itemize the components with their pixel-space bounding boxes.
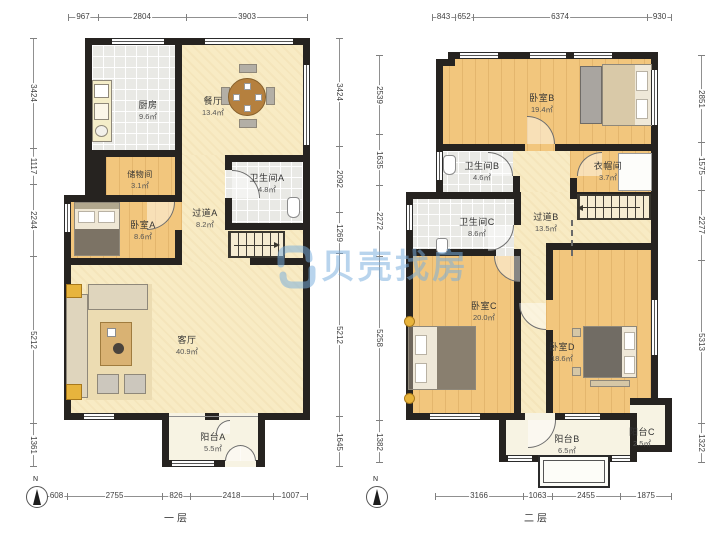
stairs-direction-arrow (234, 245, 274, 246)
bed-pillow (98, 211, 115, 223)
dimension-label: 2851 (697, 89, 705, 109)
wall-segment (665, 398, 672, 452)
sofa-icon (88, 284, 148, 310)
stove-icon (94, 103, 109, 120)
wall-segment (600, 413, 630, 420)
dimension-label: 3166 (469, 492, 489, 500)
floor2-ruler-right: 2851 1575 2277 5313 1322 (695, 55, 707, 463)
floor2-label: 二层 (524, 510, 550, 525)
dimension-label: 2418 (222, 492, 242, 500)
window (112, 38, 164, 45)
side-table-icon (66, 284, 82, 298)
compass-icon (26, 486, 48, 508)
room-label-dining: 餐厅13.4㎡ (202, 94, 224, 118)
window (436, 152, 443, 180)
room-label-hallway-b: 过道B13.5㎡ (533, 210, 559, 234)
dimension-label: 2539 (375, 85, 383, 105)
kettle-icon (95, 125, 108, 137)
toilet-icon (287, 197, 300, 218)
stool-icon (404, 316, 415, 327)
room-label-bedroom-c: 卧室C20.0㎡ (471, 299, 497, 323)
floor2-ruler-bottom: 3166 1063 2455 1875 (435, 490, 672, 502)
dimension-label: 5258 (375, 328, 383, 348)
bed-duvet (584, 327, 622, 377)
room-label-cloakroom: 衣帽间3.7㎡ (594, 159, 623, 183)
dimension-label: 3424 (335, 82, 343, 102)
room-label-bath-a: 卫生间A4.8㎡ (249, 171, 284, 195)
bed-duvet (75, 229, 119, 255)
floor1-ruler-top: 967 2804 3903 (68, 11, 308, 23)
dimension-label: 930 (652, 13, 667, 21)
window (172, 460, 214, 467)
wall-segment (64, 195, 182, 202)
dimension-label: 1382 (375, 432, 383, 452)
balcony-sill-line (169, 416, 258, 417)
room-label-kitchen: 厨房9.6㎡ (138, 98, 157, 122)
dimension-label: 1063 (528, 492, 548, 500)
plate-icon (255, 94, 262, 101)
window (84, 413, 114, 420)
door-opening (225, 460, 256, 467)
dimension-label: 843 (436, 13, 451, 21)
room-label-bedroom-a: 卧室A8.6㎡ (130, 218, 156, 242)
coffee-table-icon (100, 322, 132, 366)
wall-segment (514, 199, 521, 225)
dimension-label: 2092 (335, 169, 343, 189)
bed-icon (602, 64, 652, 126)
room-label-bath-c: 卫生间C8.6㎡ (459, 215, 495, 239)
dining-table-icon (228, 78, 266, 116)
bay-window-frame (543, 460, 605, 483)
dimension-label: 652 (456, 13, 471, 21)
plate-icon (244, 83, 251, 90)
wall-segment (555, 144, 658, 151)
window (651, 300, 658, 355)
dimension-label: 1361 (29, 435, 37, 455)
wall-segment (553, 243, 658, 250)
staircase (228, 231, 285, 258)
dimension-label: 1635 (375, 150, 383, 170)
bed-bench-icon (590, 380, 630, 387)
floor2-ruler-top: 843 652 6374 930 (432, 11, 672, 23)
room-label-bedroom-b: 卧室B19.4㎡ (529, 91, 555, 115)
bed-pillow (636, 99, 648, 119)
bed-headboard (409, 327, 413, 389)
floor1-label: 一层 (164, 510, 190, 525)
plate-icon (244, 105, 251, 112)
bed-pillow (636, 71, 648, 91)
armchair-icon (124, 374, 146, 394)
sink-icon (94, 84, 109, 98)
bed-icon (408, 326, 476, 390)
dimension-label: 1575 (697, 156, 705, 176)
bed-pillow (415, 363, 427, 383)
window (303, 65, 310, 145)
wall-segment (258, 413, 265, 467)
room-label-storage: 储物间3.1㎡ (127, 169, 153, 191)
bed-pillow (624, 356, 635, 374)
wall-segment (546, 243, 553, 300)
dimension-label: 6374 (550, 13, 570, 21)
dimension-label: 2277 (697, 215, 705, 235)
wall-segment (162, 413, 169, 467)
wall-segment (88, 150, 182, 157)
toilet-icon (436, 238, 448, 254)
side-table-icon (66, 384, 82, 400)
wall-segment (436, 144, 525, 151)
window (565, 413, 600, 420)
armchair-icon (97, 374, 119, 394)
bed-icon (583, 326, 637, 378)
room-label-balcony-b: 阳台B6.5㎡ (554, 432, 580, 456)
wall-segment (506, 413, 525, 420)
room-label-bath-b: 卫生间B4.6㎡ (464, 159, 499, 183)
wall-segment (265, 413, 310, 420)
room-label-living: 客厅40.9㎡ (176, 333, 198, 357)
north-label: N (33, 476, 38, 483)
toilet-icon (443, 155, 456, 175)
stairs-direction-arrow (583, 207, 640, 208)
plate-icon (233, 94, 240, 101)
dimension-label: 1007 (281, 492, 301, 500)
dining-chair-icon (239, 64, 257, 73)
window (460, 52, 498, 59)
wall-segment (64, 258, 182, 265)
floor1-ruler-right: 3424 2092 1269 5212 1645 (333, 38, 345, 467)
dimension-label: 2804 (132, 13, 152, 21)
dimension-label: 1117 (29, 157, 37, 176)
dimension-label: 967 (75, 13, 90, 21)
dimension-label: 1645 (335, 432, 343, 452)
nightstand-icon (572, 328, 581, 337)
dimension-label: 3424 (29, 83, 37, 103)
compass-icon (366, 486, 388, 508)
wall-segment (406, 192, 521, 199)
wall-segment (85, 38, 92, 202)
dimension-label: 3903 (237, 13, 257, 21)
window (612, 455, 630, 462)
wall-segment (555, 413, 565, 420)
cabinet-icon (618, 153, 652, 191)
dimension-label: 5212 (29, 330, 37, 350)
dimension-label: 608 (49, 492, 64, 500)
dimension-label: 826 (168, 492, 183, 500)
bed-duvet (437, 327, 475, 389)
window (406, 205, 413, 230)
bed-headboard (75, 203, 119, 209)
wall-segment (250, 258, 310, 265)
bed-duvet (603, 65, 635, 125)
wall-segment (225, 155, 232, 170)
nightstand-icon (572, 367, 581, 376)
room-label-bedroom-d: 卧室D18.6㎡ (549, 340, 575, 364)
dimension-label: 1322 (697, 433, 705, 453)
staircase (577, 194, 651, 220)
wall-segment (406, 249, 496, 256)
dimension-label: 5313 (697, 332, 705, 352)
window (64, 204, 71, 232)
wall-segment (225, 223, 310, 230)
window (205, 38, 293, 45)
bay-window (538, 455, 610, 488)
wardrobe-icon (580, 66, 602, 124)
decor-icon (107, 328, 116, 337)
decor-icon (113, 343, 124, 354)
wall-segment (175, 45, 182, 150)
window (651, 70, 658, 125)
room-label-balcony-c: 阳台C2.5㎡ (629, 425, 655, 449)
wall-segment (514, 249, 521, 256)
floor1-ruler-left: 3424 1117 2244 5212 1361 (27, 38, 39, 467)
dimension-label: 1269 (335, 223, 343, 243)
dimension-label: 2272 (375, 211, 383, 231)
north-label: N (373, 476, 378, 483)
bed-pillow (624, 332, 635, 350)
room-label-hallway-a: 过道A8.2㎡ (192, 206, 218, 230)
dimension-label: 1875 (636, 492, 656, 500)
bed-icon (74, 202, 120, 256)
window (530, 52, 566, 59)
wall-segment (225, 155, 310, 162)
dining-chair-icon (239, 119, 257, 128)
stool-icon (404, 393, 415, 404)
sofa-icon (66, 294, 88, 398)
dimension-label: 5212 (335, 325, 343, 345)
stairs-headroom-dashed-line (571, 220, 573, 256)
window (430, 413, 480, 420)
window (574, 52, 612, 59)
floor1-ruler-bottom: 608 2755 826 2418 1007 (46, 490, 308, 502)
dimension-label: 2455 (576, 492, 596, 500)
dining-chair-icon (266, 87, 275, 105)
dimension-label: 2244 (29, 210, 37, 230)
floorplan-canvas: 厨房9.6㎡ 餐厅13.4㎡ 储物间3.1㎡ 卧室A8.6㎡ 过道A8.2㎡ 卫… (0, 0, 720, 540)
room-label-balcony-a: 阳台A5.5㎡ (200, 430, 226, 454)
dimension-label: 2755 (105, 492, 125, 500)
bed-pillow (415, 335, 427, 355)
window (508, 455, 532, 462)
bed-pillow (78, 211, 95, 223)
floor2-ruler-left: 2539 1635 2272 5258 1382 (373, 55, 385, 463)
